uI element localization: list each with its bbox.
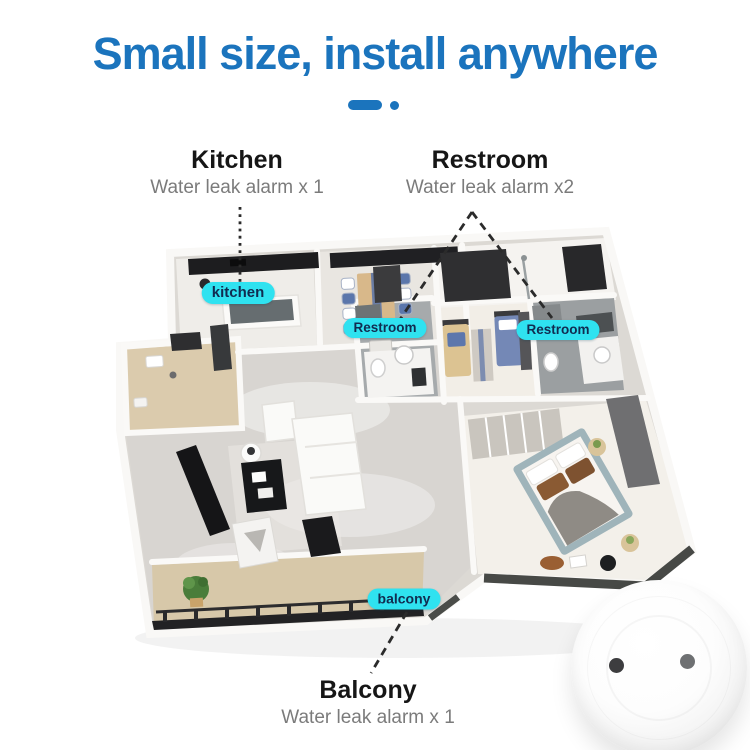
callout-balcony-subtitle: Water leak alarm x 1	[281, 707, 455, 729]
callout-kitchen: Kitchen Water leak alarm x 1	[150, 146, 324, 199]
room-badge-restroom-right: Restroom	[516, 320, 599, 340]
sensor-probe-left-icon	[609, 658, 624, 673]
room-badge-restroom-left: Restroom	[343, 318, 426, 338]
callout-restroom: Restroom Water leak alarm x2	[406, 146, 574, 199]
water-leak-sensor-product	[571, 580, 747, 750]
callout-kitchen-heading: Kitchen	[150, 146, 324, 175]
callout-restroom-subtitle: Water leak alarm x2	[406, 177, 574, 199]
page-title: Small size, install anywhere	[0, 28, 750, 80]
callout-balcony: Balcony Water leak alarm x 1	[281, 676, 455, 729]
callout-balcony-heading: Balcony	[281, 676, 455, 705]
callout-kitchen-subtitle: Water leak alarm x 1	[150, 177, 324, 199]
callout-restroom-heading: Restroom	[406, 146, 574, 175]
room-badge-balcony: balcony	[368, 589, 441, 610]
sensor-probe-right-icon	[680, 654, 695, 669]
title-underline-dot	[390, 101, 399, 110]
title-underline-dash	[348, 100, 382, 110]
product-infographic: Small size, install anywhere Kitchen Wat…	[0, 0, 750, 750]
room-badge-kitchen: kitchen	[202, 282, 275, 304]
